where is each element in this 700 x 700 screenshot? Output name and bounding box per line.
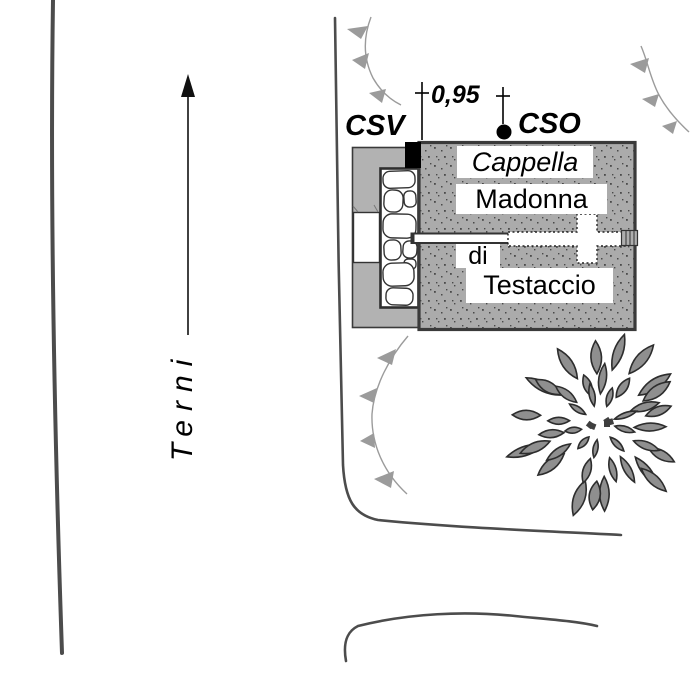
site-plan-canvas — [0, 0, 700, 700]
tree-leaf — [625, 342, 657, 377]
csv-label: CSV — [345, 112, 405, 141]
tree-leaf — [591, 439, 599, 458]
tree-leaf — [548, 417, 570, 424]
tree-leaf — [568, 479, 591, 518]
distance-label: 0,95 — [431, 83, 480, 108]
tree-leaf — [512, 410, 540, 420]
chapel-name-line3: di — [456, 244, 500, 268]
cso-marker — [497, 125, 512, 140]
cso-label: CSO — [518, 110, 581, 139]
tree-leaf — [568, 402, 587, 417]
chapel-name-line4: Testaccio — [466, 268, 613, 303]
csv-marker — [405, 142, 421, 168]
chapel-name-line2: Madonna — [456, 184, 607, 214]
tree-leaf — [579, 457, 594, 483]
direction-arrow — [181, 74, 195, 335]
tree-leaf — [553, 346, 581, 381]
tree-leaf — [608, 435, 626, 453]
tree-leaf — [614, 409, 638, 422]
tree-leaf — [539, 429, 565, 439]
tree-icon — [505, 333, 676, 517]
tree-leaf — [634, 423, 666, 432]
tree-leaf — [608, 333, 629, 372]
tree-leaf — [565, 426, 582, 434]
tree-leaf — [604, 387, 615, 407]
slope-hatch-below — [359, 336, 408, 494]
tree-leaf — [638, 465, 669, 495]
tree-leaf — [617, 455, 637, 484]
tree-leaf — [590, 341, 602, 374]
road-lower-edge — [345, 613, 597, 661]
slope-hatch-upper-right — [630, 46, 689, 134]
road-left-edge — [52, 0, 62, 653]
tree-leaf — [587, 383, 597, 406]
tree-leaf — [576, 435, 591, 450]
site-plan: CSV CSO 0,95 Cappella Madonna di Testacc… — [0, 0, 700, 700]
tree-leaf — [613, 376, 633, 400]
dimension-tick-right — [496, 87, 510, 124]
tree-leaf — [606, 457, 619, 483]
annex-opening — [354, 213, 380, 263]
east-doorway — [622, 231, 638, 246]
internal-wall — [411, 233, 509, 245]
direction-label: Terni — [166, 351, 200, 462]
tree-leaf — [632, 437, 660, 454]
slope-hatch-upper-left — [347, 17, 401, 105]
dimension-tick-left — [415, 82, 429, 140]
chapel-name-line1: Cappella — [457, 146, 593, 178]
tree-leaf — [614, 423, 636, 434]
